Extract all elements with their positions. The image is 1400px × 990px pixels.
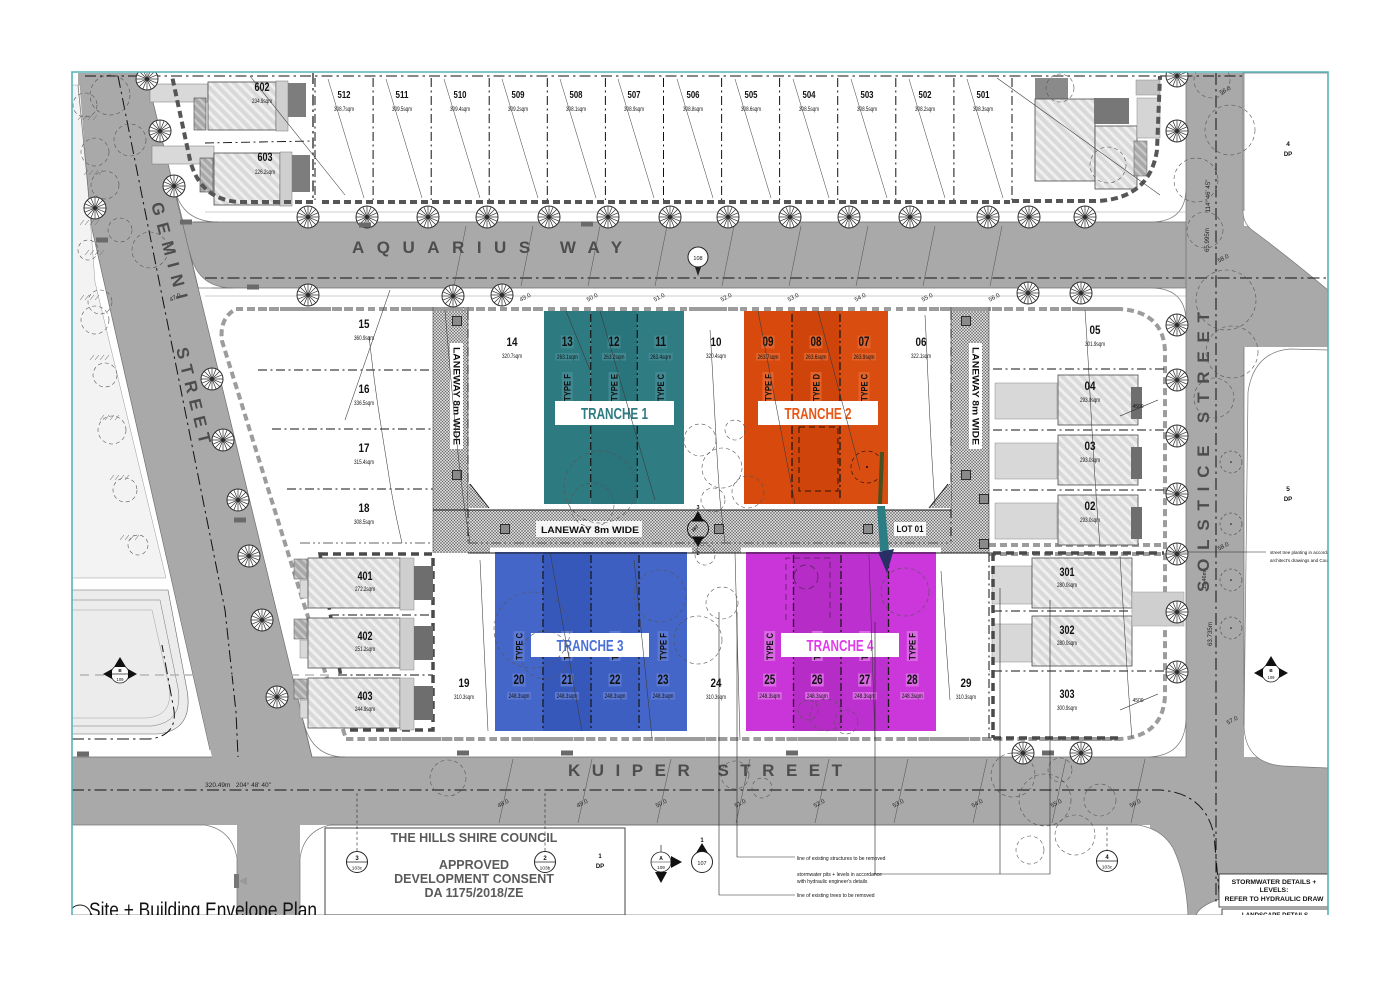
svg-text:17: 17: [359, 441, 370, 455]
svg-text:308.6sqm: 308.6sqm: [741, 106, 761, 113]
svg-text:STORMWATER DETAILS +: STORMWATER DETAILS +: [1232, 879, 1317, 886]
svg-text:248.3sqm: 248.3sqm: [509, 693, 530, 700]
svg-text:TRANCHE 2: TRANCHE 2: [785, 406, 852, 423]
svg-text:107: 107: [697, 861, 706, 867]
svg-text:512: 512: [338, 89, 351, 101]
svg-text:TYPE C: TYPE C: [765, 633, 775, 660]
svg-text:TRANCHE 4: TRANCHE 4: [807, 638, 874, 655]
svg-text:with hydraulic engineer's deta: with hydraulic engineer's details: [797, 879, 868, 885]
svg-text:103b: 103b: [540, 866, 551, 872]
svg-text:308.2sqm: 308.2sqm: [915, 106, 935, 113]
svg-text:A: A: [659, 856, 663, 862]
svg-text:28: 28: [907, 672, 918, 687]
svg-text:336.5sqm: 336.5sqm: [354, 400, 374, 407]
svg-text:508: 508: [570, 89, 583, 101]
svg-text:272.2sqm: 272.2sqm: [355, 586, 375, 593]
svg-text:263.4sqm: 263.4sqm: [650, 354, 671, 361]
svg-text:DP: DP: [596, 864, 604, 870]
svg-text:509: 509: [512, 89, 525, 101]
svg-text:109: 109: [117, 677, 125, 682]
svg-text:511: 511: [396, 89, 409, 101]
svg-text:DA 1175/2018/ZE: DA 1175/2018/ZE: [425, 886, 524, 900]
svg-text:103c: 103c: [352, 866, 363, 872]
svg-text:248.3sqm: 248.3sqm: [653, 693, 674, 700]
svg-text:103c: 103c: [1102, 865, 1113, 871]
svg-text:24: 24: [711, 676, 722, 690]
svg-text:LANEWAY 8m WIDE: LANEWAY 8m WIDE: [971, 347, 981, 445]
svg-text:251.2sqm: 251.2sqm: [355, 646, 375, 653]
svg-text:320.4sqm: 320.4sqm: [706, 353, 726, 360]
svg-text:50.0: 50.0: [586, 292, 600, 303]
svg-text:403: 403: [358, 689, 373, 703]
svg-text:603: 603: [258, 150, 273, 164]
svg-text:310.3sqm: 310.3sqm: [454, 694, 474, 701]
svg-text:architect's drawings and Coun: architect's drawings and Coun: [1270, 558, 1331, 563]
svg-text:10: 10: [711, 335, 722, 349]
svg-text:309.4sqm: 309.4sqm: [450, 106, 470, 113]
svg-text:TYPE F: TYPE F: [563, 374, 573, 401]
svg-text:310.3sqm: 310.3sqm: [956, 694, 976, 701]
svg-text:54.0: 54.0: [854, 292, 868, 303]
svg-text:263.9sqm: 263.9sqm: [854, 354, 875, 361]
svg-text:15: 15: [359, 317, 370, 331]
svg-text:320.7sqm: 320.7sqm: [502, 353, 522, 360]
svg-text:TYPE F: TYPE F: [763, 374, 773, 401]
svg-text:13: 13: [562, 334, 573, 349]
svg-text:602: 602: [255, 80, 270, 94]
svg-text:402: 402: [358, 629, 373, 643]
svg-text:KUIPER STREET: KUIPER STREET: [568, 761, 854, 780]
svg-text:309.2sqm: 309.2sqm: [508, 106, 528, 113]
svg-text:263.1sqm: 263.1sqm: [557, 354, 578, 361]
svg-text:THE HILLS SHIRE COUNCIL: THE HILLS SHIRE COUNCIL: [391, 831, 558, 845]
svg-text:TYPE C: TYPE C: [656, 374, 666, 401]
svg-text:06: 06: [916, 335, 927, 349]
svg-text:05: 05: [1090, 323, 1101, 337]
svg-text:08: 08: [811, 334, 822, 349]
svg-text:108: 108: [693, 256, 702, 262]
svg-text:TYPE F: TYPE F: [908, 633, 918, 660]
svg-text:293.0sqm: 293.0sqm: [1080, 517, 1100, 524]
svg-text:09: 09: [763, 334, 774, 349]
svg-text:03: 03: [1085, 439, 1096, 453]
svg-text:2: 2: [696, 551, 699, 557]
svg-text:27: 27: [859, 672, 870, 687]
svg-text:SOLSTICE STREET: SOLSTICE STREET: [1194, 303, 1213, 592]
svg-text:51.0: 51.0: [653, 292, 667, 303]
svg-text:5: 5: [1286, 486, 1290, 493]
svg-text:505: 505: [745, 89, 758, 101]
svg-text:21: 21: [562, 672, 573, 687]
svg-text:3: 3: [696, 505, 699, 511]
svg-text:244.9sqm: 244.9sqm: [355, 706, 375, 713]
svg-text:LANEWAY 8m WIDE: LANEWAY 8m WIDE: [452, 347, 462, 445]
svg-text:506: 506: [687, 89, 700, 101]
svg-text:302: 302: [1060, 623, 1075, 637]
svg-text:310.3sqm: 310.3sqm: [706, 694, 726, 701]
svg-text:55.0: 55.0: [921, 292, 935, 303]
svg-text:226.2sqm: 226.2sqm: [255, 169, 275, 176]
svg-text:109: 109: [657, 865, 665, 870]
svg-text:DEVELOPMENT CONSENT: DEVELOPMENT CONSENT: [394, 872, 554, 886]
svg-text:AQUARIUS WAY: AQUARIUS WAY: [352, 238, 635, 257]
svg-text:248.3sqm: 248.3sqm: [605, 693, 626, 700]
svg-text:53.0: 53.0: [787, 292, 801, 303]
svg-text:308.8sqm: 308.8sqm: [683, 106, 703, 113]
svg-text:308.5sqm: 308.5sqm: [857, 106, 877, 113]
svg-text:248.3sqm: 248.3sqm: [557, 693, 578, 700]
svg-text:29: 29: [961, 676, 972, 690]
svg-text:14: 14: [507, 335, 518, 349]
svg-text:TYPE D: TYPE D: [811, 374, 821, 401]
svg-text:300.9sqm: 300.9sqm: [1057, 705, 1077, 712]
svg-text:308.5sqm: 308.5sqm: [354, 519, 374, 526]
svg-text:52.0: 52.0: [720, 292, 734, 303]
svg-text:248.3sqm: 248.3sqm: [902, 693, 923, 700]
svg-text:248.3sqm: 248.3sqm: [759, 693, 780, 700]
svg-text:280.0sqm: 280.0sqm: [1057, 640, 1077, 647]
svg-text:TYPE C: TYPE C: [514, 633, 524, 660]
svg-text:REFER TO HYDRAULIC DRAW: REFER TO HYDRAULIC DRAW: [1225, 896, 1324, 903]
svg-text:248.3sqm: 248.3sqm: [854, 693, 875, 700]
svg-text:49.0: 49.0: [519, 292, 533, 303]
svg-text:TRANCHE 1: TRANCHE 1: [581, 406, 648, 423]
svg-text:65.995m: 65.995m: [1204, 228, 1211, 252]
svg-text:LEVELS:: LEVELS:: [1260, 887, 1289, 894]
svg-text:308.5sqm: 308.5sqm: [799, 106, 819, 113]
svg-text:308.1sqm: 308.1sqm: [566, 106, 586, 113]
svg-text:360.9sqm: 360.9sqm: [354, 335, 374, 342]
svg-text:DP: DP: [1284, 497, 1292, 503]
svg-text:line of existing trees to be r: line of existing trees to be removed: [797, 893, 875, 899]
svg-text:308.7sqm: 308.7sqm: [334, 106, 354, 113]
svg-text:TYPE F: TYPE F: [658, 633, 668, 660]
svg-text:234.9sqm: 234.9sqm: [252, 98, 272, 105]
svg-text:303: 303: [1060, 687, 1075, 701]
svg-text:501: 501: [977, 89, 990, 101]
svg-text:263.6sqm: 263.6sqm: [806, 354, 827, 361]
svg-text:26: 26: [812, 672, 823, 687]
svg-text:301.9sqm: 301.9sqm: [1085, 341, 1105, 348]
svg-text:25: 25: [764, 672, 775, 687]
svg-text:23: 23: [658, 672, 669, 687]
svg-text:22: 22: [610, 672, 621, 687]
svg-text:19: 19: [459, 676, 470, 690]
svg-text:20: 20: [514, 672, 525, 687]
svg-text:18: 18: [359, 501, 370, 515]
svg-text:401: 401: [358, 569, 373, 583]
svg-text:TYPE E: TYPE E: [609, 374, 619, 401]
svg-text:309.5sqm: 309.5sqm: [392, 106, 412, 113]
svg-text:line of existing structures to: line of existing structures to be remove…: [797, 856, 886, 862]
svg-text:510: 510: [454, 89, 467, 101]
svg-text:11: 11: [655, 334, 666, 349]
svg-text:07: 07: [859, 334, 870, 349]
svg-text:280.0sqm: 280.0sqm: [1057, 582, 1077, 589]
svg-text:320.49m 204° 48' 40": 320.49m 204° 48' 40": [205, 781, 271, 789]
svg-text:308.9sqm: 308.9sqm: [624, 106, 644, 113]
svg-text:322.1sqm: 322.1sqm: [911, 353, 931, 360]
svg-text:63.735m: 63.735m: [1207, 622, 1214, 646]
svg-text:DP: DP: [1284, 152, 1292, 158]
svg-text:02: 02: [1085, 499, 1096, 513]
svg-text:263.7sqm: 263.7sqm: [758, 354, 779, 361]
svg-text:LOT 01: LOT 01: [897, 524, 924, 534]
svg-text:APPROVED: APPROVED: [439, 858, 509, 872]
svg-text:TYPE C: TYPE C: [859, 374, 869, 401]
svg-text:503: 503: [861, 89, 874, 101]
svg-text:301: 301: [1060, 565, 1075, 579]
svg-text:308.3sqm: 308.3sqm: [973, 106, 993, 113]
svg-text:street tree planting in accord: street tree planting in accordan: [1270, 550, 1332, 555]
svg-text:504: 504: [803, 89, 816, 101]
svg-text:LANEWAY 8m WIDE: LANEWAY 8m WIDE: [541, 525, 639, 535]
svg-text:507: 507: [628, 89, 641, 101]
svg-text:16: 16: [359, 382, 370, 396]
svg-text:56.0: 56.0: [988, 292, 1002, 303]
svg-text:293.0sqm: 293.0sqm: [1080, 457, 1100, 464]
svg-text:502: 502: [919, 89, 932, 101]
svg-text:315.4sqm: 315.4sqm: [354, 459, 374, 466]
svg-text:stormwater pits + levels in ac: stormwater pits + levels in accordance: [797, 872, 882, 878]
svg-text:4: 4: [1286, 141, 1290, 148]
svg-text:109: 109: [1268, 675, 1276, 680]
